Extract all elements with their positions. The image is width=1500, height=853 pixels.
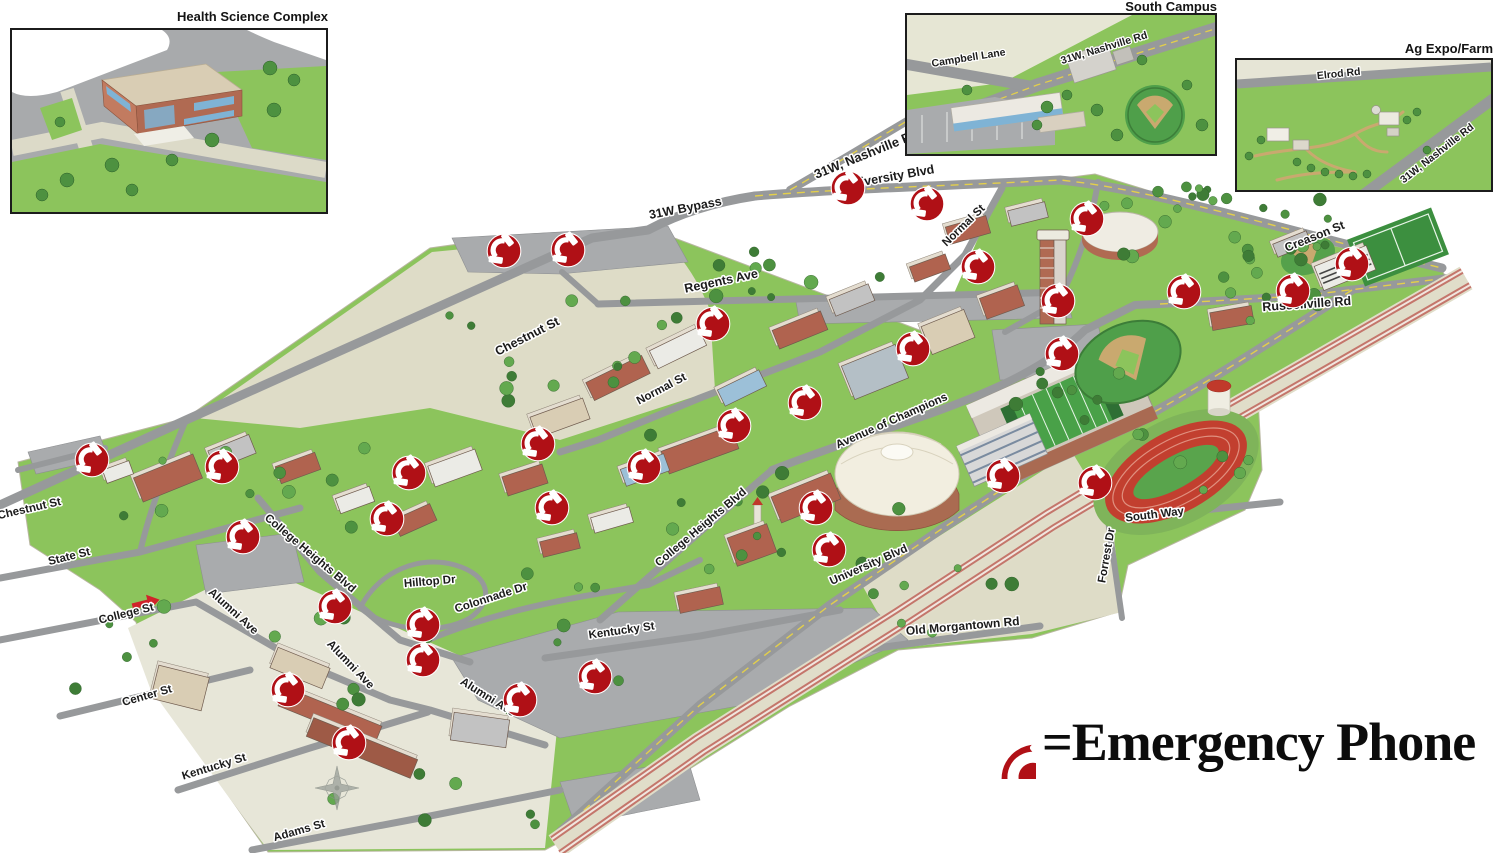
legend: =Emergency Phone [962,705,1475,779]
water-tower [1207,380,1231,416]
emergency-phone-icon [962,705,1036,779]
ball-diamond [1125,85,1185,145]
inset-title-ag-expo: Ag Expo/Farm [1235,41,1493,56]
dome-arena [835,432,959,531]
inset-south-campus: Campbell Lane31W, Nashville Rd [905,13,1217,156]
campus-map-page: { "legend": { "label": "=Emergency Phone… [0,0,1500,853]
inset-health-science-complex [10,28,328,214]
inset-title-south-campus: South Campus [905,0,1217,14]
inset-title-health-science: Health Science Complex [10,9,328,24]
inset-ag-expo-farm: Elrod Rd31W, Nashville Rd [1235,58,1493,192]
legend-label: =Emergency Phone [1042,711,1475,773]
